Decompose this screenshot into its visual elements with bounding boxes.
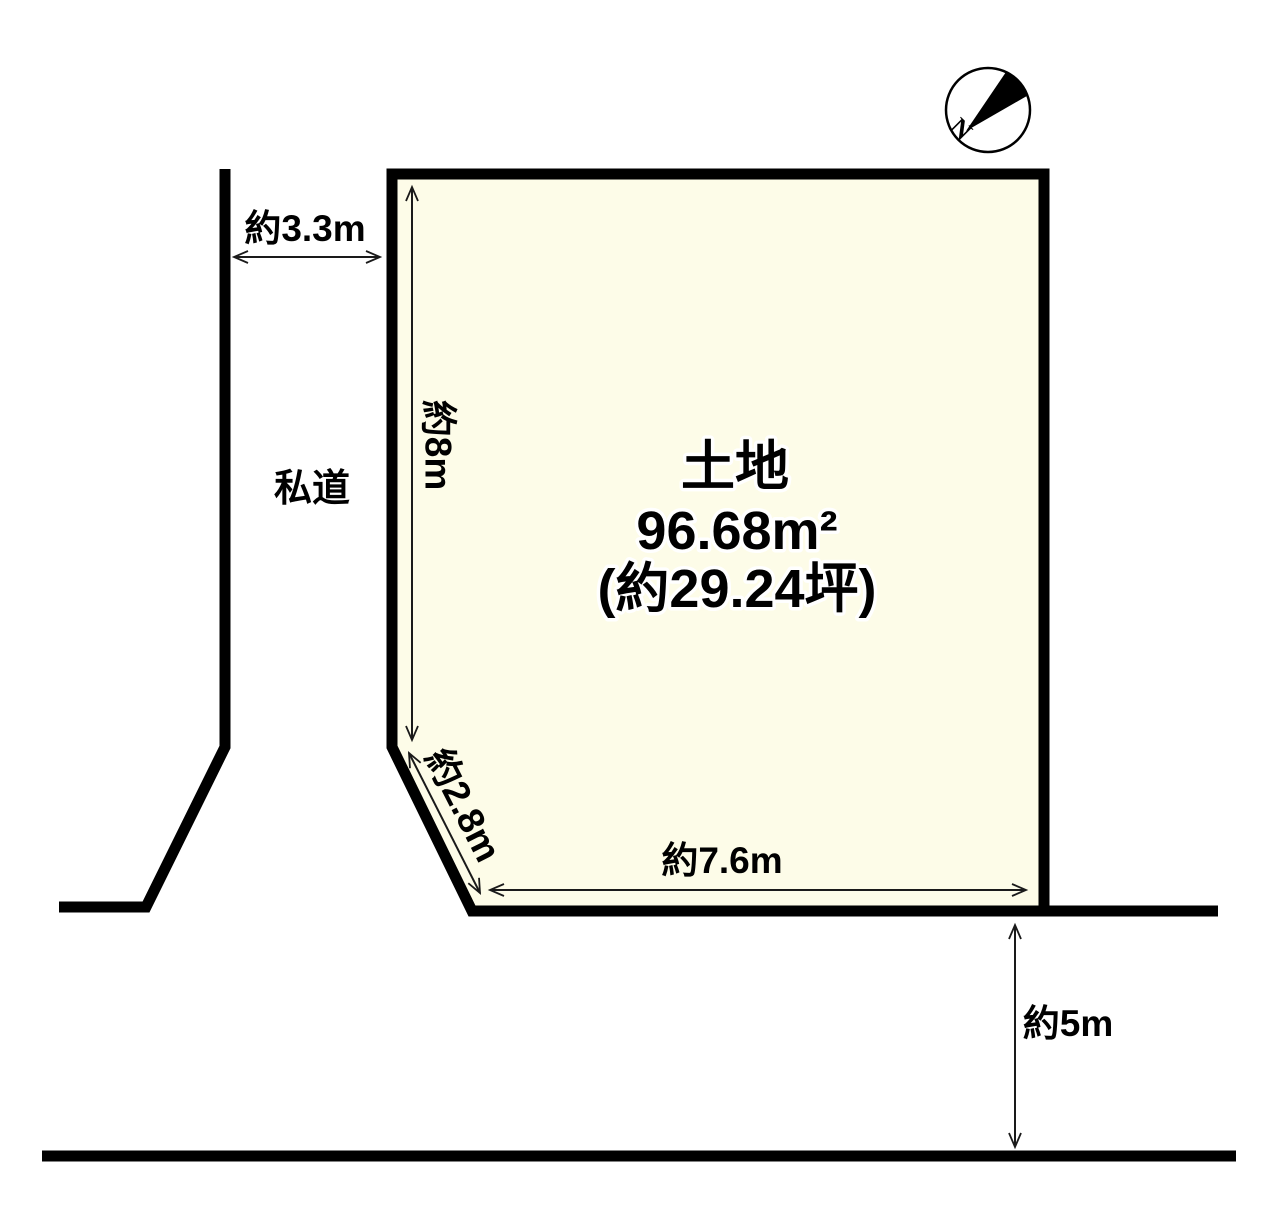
plot-diagram-canvas: N 約3.3m 約8m 約2.8m 約7.6m 約5m 私道 [0,0,1273,1219]
dim-label-west-side: 約8m [418,400,459,490]
dim-south-road-width: 約5m [1015,925,1113,1147]
private-road-label: 私道 [274,468,350,510]
dim-label-front-road-width: 約3.3m [244,208,365,249]
plot-title: 土地 [681,437,789,497]
plot-area-tsubo: (約29.24坪) [597,559,876,619]
private-road-edge-line [59,169,225,907]
dim-label-south-side: 約7.6m [661,840,782,881]
land-plot-diagram: N 約3.3m 約8m 約2.8m 約7.6m 約5m 私道 [0,0,1273,1219]
plot-area-sqm: 96.68m² [636,501,837,561]
compass-north-icon: N [944,68,1030,152]
dim-label-south-road-width: 約5m [1023,1003,1113,1044]
dim-front-road-width: 約3.3m [234,208,380,257]
